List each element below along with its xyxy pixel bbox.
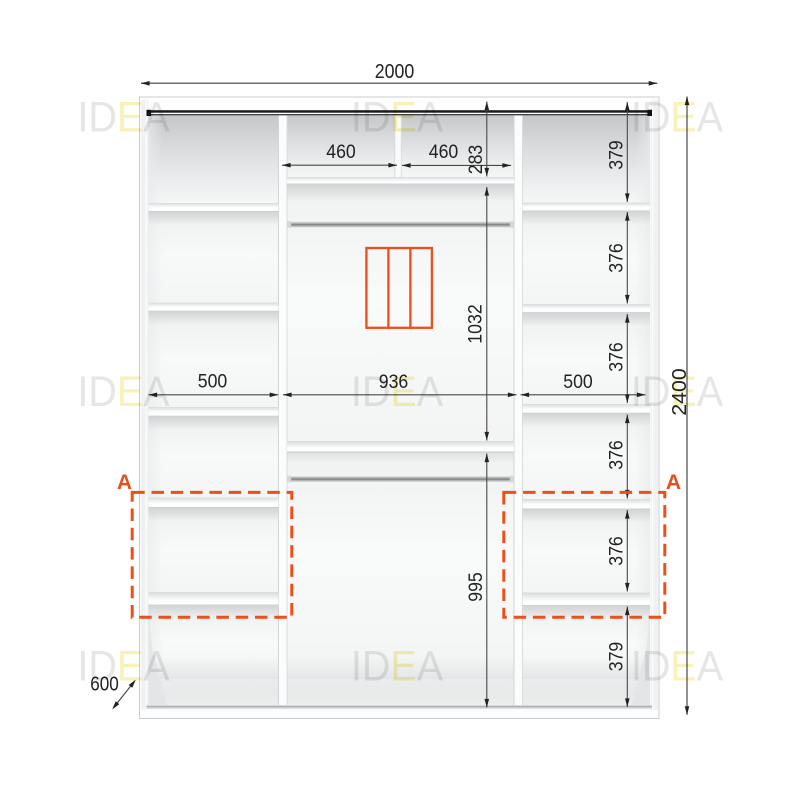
svg-text:995: 995: [466, 572, 487, 602]
svg-text:376: 376: [606, 440, 627, 470]
svg-text:376: 376: [606, 536, 627, 566]
svg-text:379: 379: [606, 642, 627, 672]
svg-text:460: 460: [326, 142, 356, 163]
svg-text:379: 379: [606, 140, 627, 170]
svg-text:IDEA: IDEA: [631, 367, 724, 415]
svg-text:IDEA: IDEA: [631, 93, 724, 141]
svg-text:460: 460: [429, 142, 459, 163]
svg-text:A: A: [666, 471, 681, 494]
svg-text:376: 376: [606, 243, 627, 273]
svg-text:IDEA: IDEA: [351, 93, 444, 141]
svg-text:2000: 2000: [375, 61, 415, 83]
svg-text:A: A: [117, 471, 132, 494]
svg-text:IDEA: IDEA: [77, 642, 170, 690]
svg-text:IDEA: IDEA: [351, 642, 444, 690]
svg-text:IDEA: IDEA: [77, 367, 170, 415]
svg-text:376: 376: [606, 342, 627, 372]
svg-text:IDEA: IDEA: [77, 93, 170, 141]
svg-text:IDEA: IDEA: [631, 642, 724, 690]
svg-text:IDEA: IDEA: [351, 367, 444, 415]
svg-text:500: 500: [198, 372, 228, 393]
svg-text:500: 500: [563, 372, 593, 393]
svg-text:283: 283: [466, 145, 487, 175]
svg-text:1032: 1032: [465, 304, 486, 343]
